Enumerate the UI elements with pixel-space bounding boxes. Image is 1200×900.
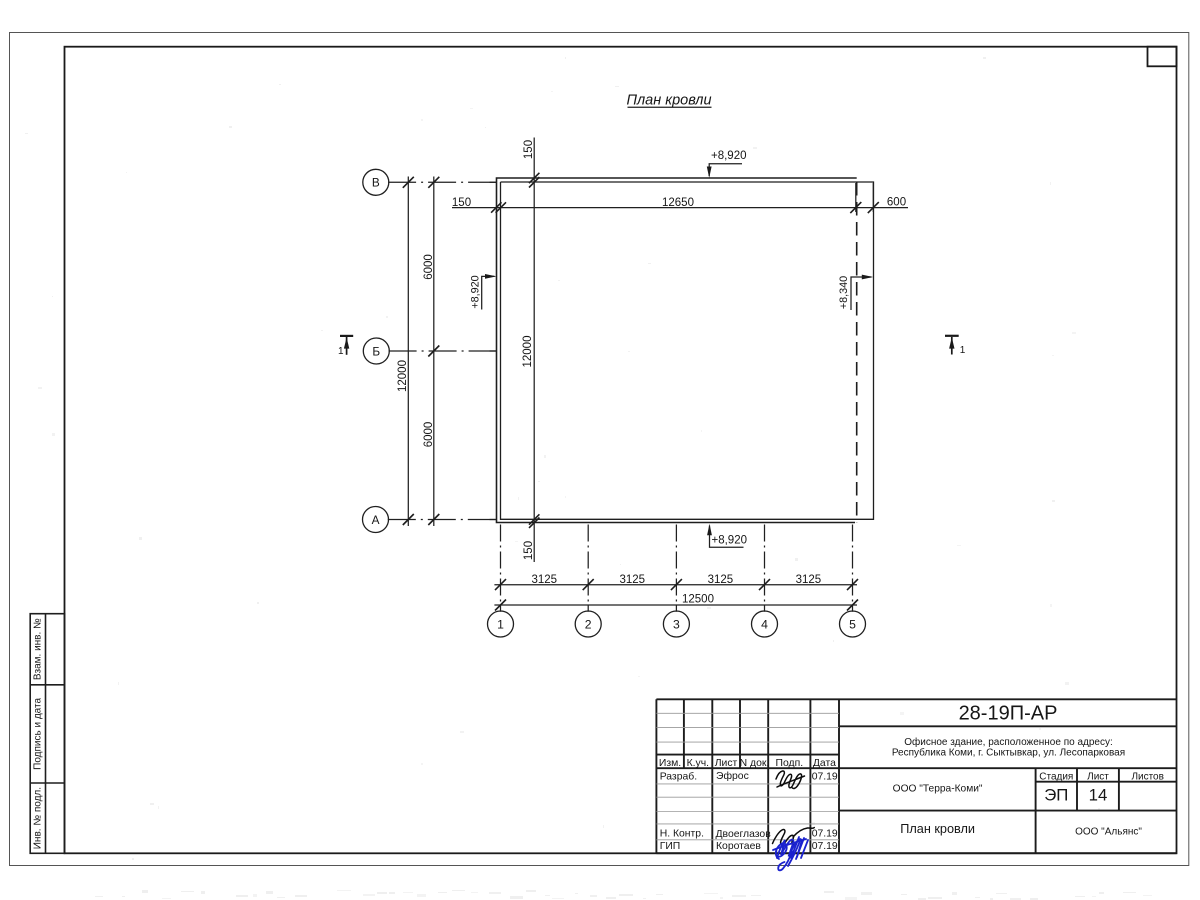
svg-text:+8,920: +8,920 <box>470 275 482 308</box>
svg-text:6000: 6000 <box>423 422 435 448</box>
svg-text:3125: 3125 <box>532 574 558 586</box>
svg-text:150: 150 <box>523 541 535 560</box>
svg-text:1: 1 <box>338 346 344 357</box>
svg-text:150: 150 <box>523 140 535 159</box>
svg-text:3125: 3125 <box>708 574 734 586</box>
svg-text:Офисное здание, расположенное: Офисное здание, расположенное по адресу: <box>904 736 1113 748</box>
svg-text:4: 4 <box>761 617 768 631</box>
svg-text:07.19: 07.19 <box>812 829 838 840</box>
svg-text:Дата: Дата <box>813 758 836 769</box>
svg-text:N док.: N док. <box>740 758 770 769</box>
svg-text:12650: 12650 <box>662 197 694 209</box>
svg-text:Стадия: Стадия <box>1039 771 1073 782</box>
svg-text:Разраб.: Разраб. <box>660 771 697 783</box>
svg-text:ГИП: ГИП <box>660 841 681 852</box>
svg-text:Лист: Лист <box>1087 771 1109 782</box>
svg-text:Б: Б <box>372 344 380 358</box>
svg-text:07.19: 07.19 <box>812 841 838 852</box>
svg-text:Взам. инв. №: Взам. инв. № <box>33 618 44 680</box>
svg-text:Изм.: Изм. <box>659 758 681 769</box>
svg-text:К.уч.: К.уч. <box>687 758 709 769</box>
svg-text:5: 5 <box>849 617 856 631</box>
svg-text:Коротаев: Коротаев <box>716 841 761 852</box>
svg-text:Лист: Лист <box>715 758 738 769</box>
svg-text:Листов: Листов <box>1131 771 1164 782</box>
svg-text:План кровли: План кровли <box>626 92 711 108</box>
svg-text:+8,340: +8,340 <box>838 276 850 309</box>
svg-text:07.19: 07.19 <box>812 772 838 783</box>
svg-text:600: 600 <box>887 197 906 209</box>
svg-text:Двоеглазов: Двоеглазов <box>716 829 772 840</box>
svg-text:12500: 12500 <box>682 594 714 606</box>
svg-text:1: 1 <box>497 617 504 631</box>
svg-text:Эфрос: Эфрос <box>716 770 749 782</box>
svg-text:2: 2 <box>585 617 592 631</box>
svg-text:Н. Контр.: Н. Контр. <box>660 829 704 840</box>
svg-text:А: А <box>372 513 380 527</box>
svg-text:Инв. № подл.: Инв. № подл. <box>33 787 44 849</box>
svg-text:3125: 3125 <box>620 574 646 586</box>
svg-text:12000: 12000 <box>522 336 534 368</box>
svg-text:3: 3 <box>673 617 680 631</box>
svg-text:ООО "Терра-Коми": ООО "Терра-Коми" <box>893 784 983 795</box>
svg-text:150: 150 <box>452 197 471 209</box>
svg-text:6000: 6000 <box>423 254 435 280</box>
svg-text:Республика Коми, г. Сыктывкар,: Республика Коми, г. Сыктывкар, ул. Лесоп… <box>892 747 1125 759</box>
svg-text:+8,920: +8,920 <box>711 150 747 162</box>
svg-text:В: В <box>372 176 380 190</box>
svg-text:ЭП: ЭП <box>1044 786 1068 805</box>
svg-text:1: 1 <box>960 345 966 356</box>
svg-text:Подп.: Подп. <box>775 758 803 769</box>
svg-text:Подпись и дата: Подпись и дата <box>33 698 44 770</box>
svg-text:12000: 12000 <box>397 360 409 392</box>
svg-text:+8,920: +8,920 <box>712 535 748 547</box>
svg-text:14: 14 <box>1089 786 1108 805</box>
svg-text:3125: 3125 <box>796 574 822 586</box>
svg-text:ООО "Альянс": ООО "Альянс" <box>1075 827 1142 838</box>
svg-text:План кровли: План кровли <box>900 822 975 836</box>
svg-text:28-19П-АР: 28-19П-АР <box>959 703 1058 725</box>
